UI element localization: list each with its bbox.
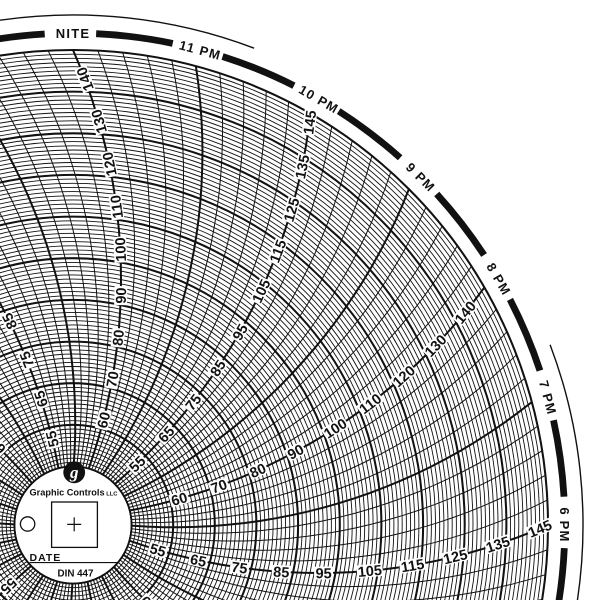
svg-text:DIN 447: DIN 447 [58,569,94,580]
svg-text:100: 100 [113,237,130,262]
svg-text:NITE: NITE [56,26,90,41]
svg-text:6 PM: 6 PM [557,507,572,542]
svg-text:110: 110 [108,194,127,219]
svg-text:145: 145 [301,110,320,136]
svg-text:70: 70 [104,370,123,389]
svg-text:90: 90 [114,287,130,304]
svg-text:105: 105 [357,563,383,581]
svg-text:80: 80 [110,329,128,347]
svg-text:75: 75 [230,560,248,578]
svg-text:g: g [69,463,79,482]
svg-text:65: 65 [188,552,207,571]
svg-text:95: 95 [315,566,331,582]
svg-text:85: 85 [273,565,290,582]
